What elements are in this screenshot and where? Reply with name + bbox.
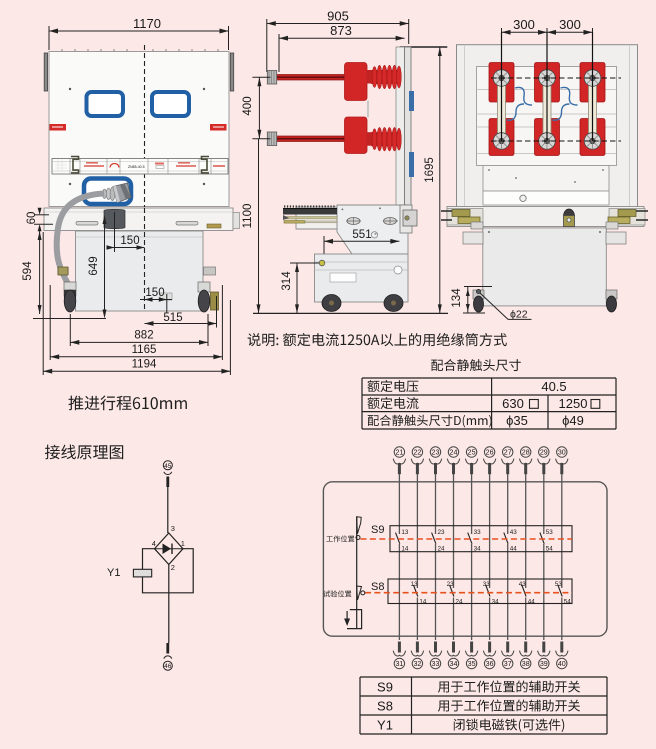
svg-text:13: 13 (401, 529, 409, 536)
svg-text:1194: 1194 (132, 358, 157, 370)
svg-text:40.5: 40.5 (541, 379, 566, 394)
svg-text:45: 45 (164, 463, 172, 470)
svg-text:35: 35 (468, 660, 476, 668)
svg-text:33: 33 (474, 529, 482, 536)
svg-text:873: 873 (330, 23, 352, 38)
svg-text:46: 46 (164, 663, 172, 670)
svg-text:24: 24 (456, 599, 464, 606)
svg-text:1170: 1170 (133, 16, 161, 31)
svg-text:54: 54 (564, 599, 572, 606)
svg-text:300: 300 (559, 17, 581, 32)
svg-text:ϕ49: ϕ49 (562, 413, 584, 428)
svg-text:36: 36 (486, 660, 494, 668)
svg-text:25: 25 (468, 449, 476, 457)
svg-text:1100: 1100 (242, 204, 254, 229)
svg-text:30: 30 (558, 449, 566, 457)
svg-text:29: 29 (540, 449, 548, 457)
svg-text:S8: S8 (377, 699, 393, 714)
svg-text:1165: 1165 (132, 344, 157, 356)
svg-text:27: 27 (504, 449, 512, 457)
svg-text:300: 300 (513, 17, 535, 32)
svg-text:53: 53 (546, 529, 554, 536)
svg-text:44: 44 (510, 546, 518, 553)
svg-text:ϕ35: ϕ35 (506, 413, 528, 428)
svg-text:14: 14 (401, 546, 409, 553)
svg-text:26: 26 (486, 449, 494, 457)
svg-text:37: 37 (504, 660, 512, 668)
svg-text:905: 905 (327, 9, 349, 24)
svg-text:24: 24 (450, 449, 458, 457)
svg-text:134: 134 (451, 288, 463, 308)
svg-text:34: 34 (492, 599, 500, 606)
svg-text:ZN85-40.5: ZN85-40.5 (128, 165, 145, 169)
svg-text:40: 40 (558, 660, 566, 668)
svg-text:28: 28 (522, 449, 530, 457)
svg-text:4: 4 (152, 539, 156, 548)
svg-text:60: 60 (26, 212, 38, 225)
svg-text:S9: S9 (371, 524, 384, 536)
svg-text:515: 515 (163, 312, 182, 324)
svg-text:22: 22 (413, 449, 421, 457)
svg-text:1695: 1695 (424, 157, 436, 183)
svg-text:551: 551 (352, 229, 371, 241)
svg-text:594: 594 (22, 261, 34, 281)
svg-text:882: 882 (134, 330, 153, 342)
svg-text:43: 43 (510, 529, 518, 536)
svg-text:43: 43 (519, 581, 527, 588)
svg-text:649: 649 (88, 256, 100, 275)
svg-text:14: 14 (419, 599, 427, 606)
svg-text:400: 400 (242, 96, 254, 115)
svg-text:24: 24 (438, 546, 446, 553)
svg-text:Y1: Y1 (107, 567, 120, 579)
svg-text:21: 21 (395, 449, 403, 457)
svg-text:33: 33 (432, 660, 440, 668)
svg-text:13: 13 (411, 581, 419, 588)
svg-text:1250: 1250 (559, 396, 588, 411)
svg-text:3: 3 (171, 524, 175, 533)
svg-text:34: 34 (450, 660, 458, 668)
svg-text:630: 630 (502, 396, 524, 411)
svg-text:S8: S8 (371, 581, 384, 593)
svg-text:Y1: Y1 (377, 718, 393, 733)
svg-text:S9: S9 (377, 680, 393, 695)
svg-text:39: 39 (540, 660, 548, 668)
svg-text:23: 23 (447, 581, 455, 588)
svg-text:150: 150 (120, 235, 139, 247)
svg-text:ϕ22: ϕ22 (510, 309, 528, 321)
svg-text:314: 314 (281, 271, 293, 291)
svg-text:34: 34 (474, 546, 482, 553)
svg-text:23: 23 (432, 449, 440, 457)
svg-text:54: 54 (546, 546, 554, 553)
svg-text:2: 2 (171, 563, 175, 572)
svg-text:53: 53 (555, 581, 563, 588)
svg-text:150: 150 (145, 287, 164, 299)
svg-text:32: 32 (413, 660, 421, 668)
svg-text:38: 38 (522, 660, 530, 668)
svg-text:1: 1 (181, 539, 185, 548)
svg-text:44: 44 (528, 599, 536, 606)
svg-text:33: 33 (483, 581, 491, 588)
svg-text:31: 31 (395, 660, 403, 668)
svg-text:23: 23 (438, 529, 446, 536)
